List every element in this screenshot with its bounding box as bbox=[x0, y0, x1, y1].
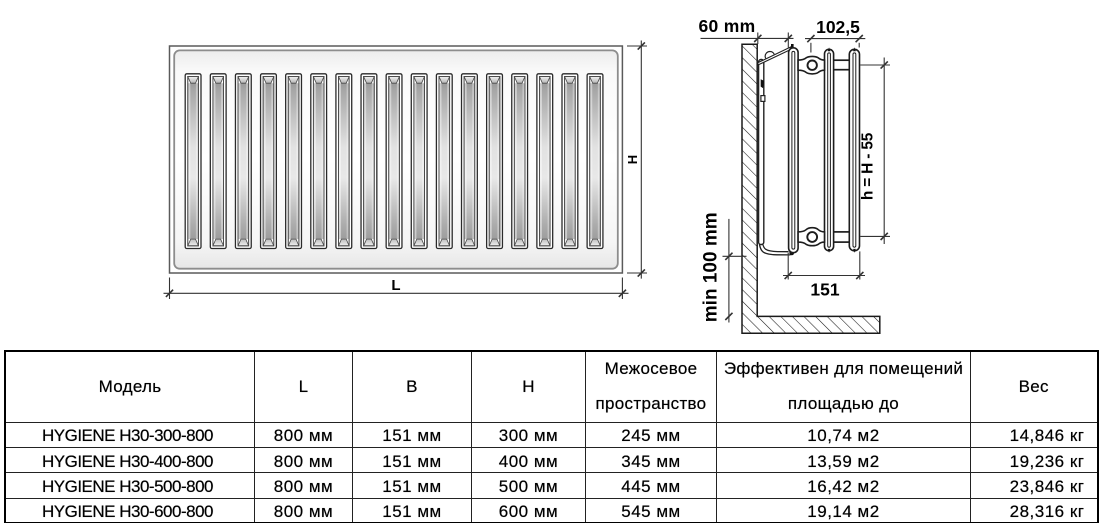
svg-text:h = H - 55: h = H - 55 bbox=[860, 132, 877, 200]
svg-text:60 mm: 60 mm bbox=[699, 16, 756, 36]
svg-text:151: 151 bbox=[810, 280, 839, 300]
svg-text:L: L bbox=[391, 277, 400, 294]
svg-text:H: H bbox=[625, 155, 640, 164]
svg-text:min 100 mm: min 100 mm bbox=[701, 212, 722, 322]
svg-text:102,5: 102,5 bbox=[816, 17, 860, 37]
